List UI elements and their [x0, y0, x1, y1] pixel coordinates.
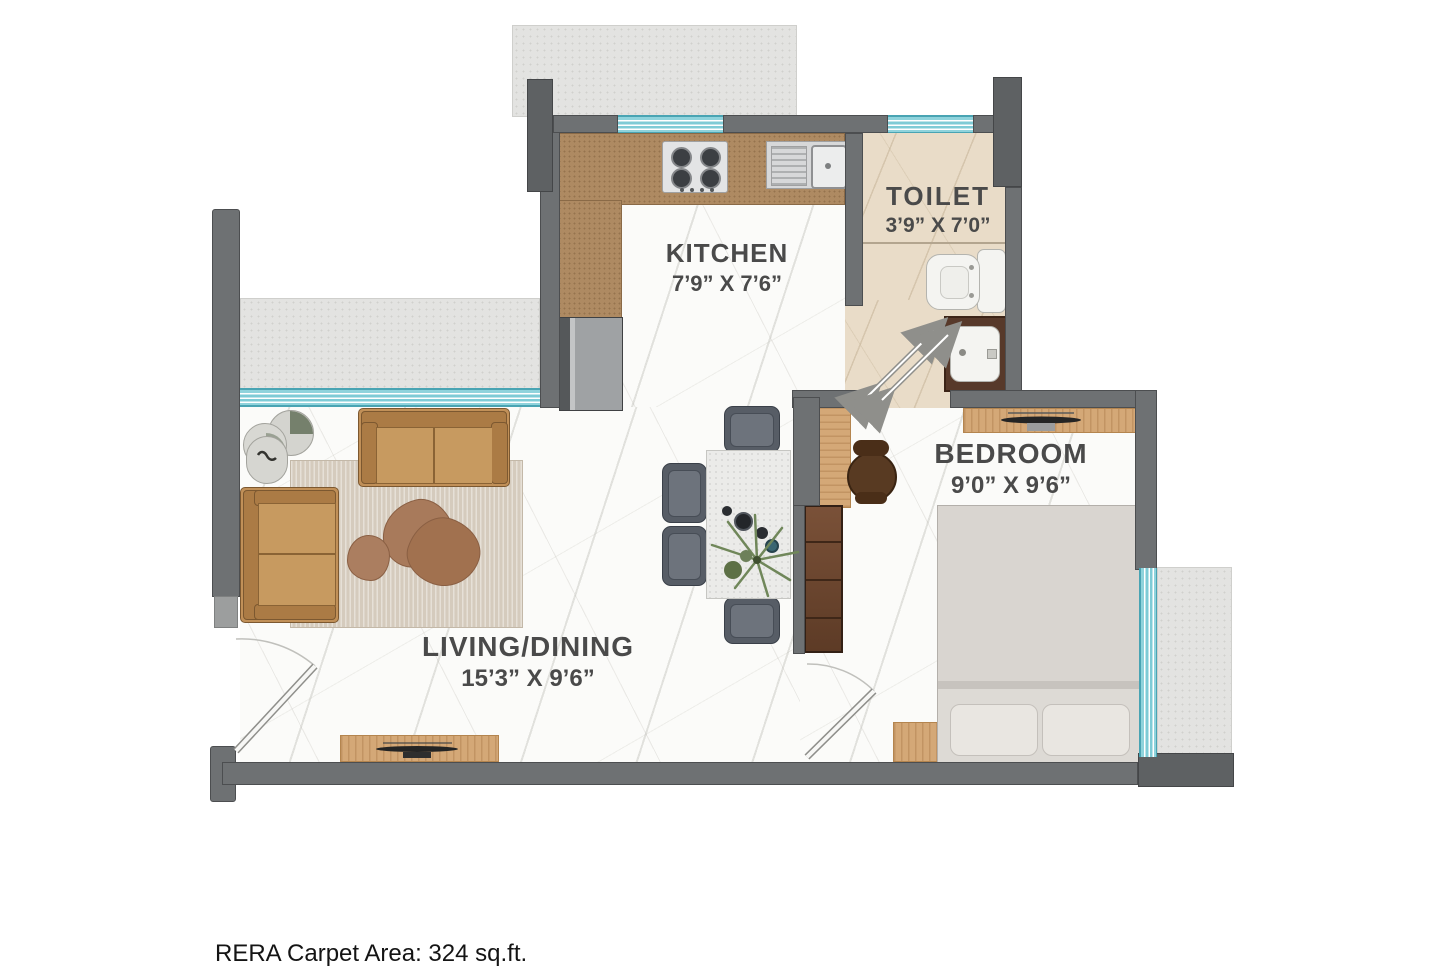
dining-chair-left-2 — [662, 526, 707, 586]
sink-unit — [766, 141, 846, 189]
dining-chair-top — [724, 406, 780, 453]
column-top-right — [993, 77, 1022, 187]
stove-burner-1 — [671, 147, 692, 168]
living-dining-name: LIVING/DINING — [422, 631, 634, 663]
bedroom-name: BEDROOM — [934, 438, 1087, 470]
sink-drainboard — [771, 146, 807, 186]
window-living — [240, 388, 540, 407]
sofa-top-arm-right — [491, 422, 508, 484]
coffee-table-pebble-3 — [347, 535, 390, 581]
office-chair — [845, 440, 897, 506]
bed — [937, 505, 1140, 762]
bedroom-label: BEDROOM 9’0” X 9’6” — [934, 438, 1087, 500]
wall-bottom — [222, 762, 1138, 785]
duct-top — [512, 25, 797, 117]
window-toilet — [888, 115, 973, 133]
wall-bedroom-top-seg-2 — [950, 390, 1157, 408]
toilet-wc-dot-2 — [969, 293, 974, 298]
deck-left — [240, 298, 540, 390]
bed-pillow-1 — [950, 704, 1038, 756]
sofa-left — [240, 487, 339, 623]
bed-fold-line — [938, 681, 1139, 689]
bedroom-size: 9’0” X 9’6” — [934, 472, 1087, 500]
toilet-divider-line — [863, 242, 1005, 244]
wall-top-seg-2 — [723, 115, 888, 133]
wall-top-seg-1 — [553, 115, 618, 133]
toilet-size: 3’9” X 7’0” — [885, 214, 990, 238]
bed-pillow-2 — [1042, 704, 1130, 756]
table-bowl-1 — [722, 506, 732, 516]
kitchen-size: 7’9” X 7’6” — [666, 271, 789, 297]
kitchen-counter-left — [556, 200, 622, 318]
tv-console — [340, 735, 499, 762]
stove-burner-3 — [671, 168, 692, 189]
table-bowl-4 — [765, 539, 779, 553]
wall-living-bedroom-partition-upper — [793, 397, 820, 506]
wall-bedroom-right-upper — [1135, 390, 1157, 570]
washbasin — [950, 326, 1000, 382]
fridge — [559, 317, 623, 411]
rera-carpet-area-note: RERA Carpet Area: 324 sq.ft. — [215, 940, 527, 968]
toilet-wc-dot-1 — [969, 265, 974, 270]
sofa-left-seat — [258, 503, 336, 606]
living-dining-label: LIVING/DINING 15’3” X 9’6” — [422, 631, 634, 693]
sofa-top-seat — [376, 427, 492, 484]
sink-bowl — [811, 145, 847, 189]
window-kitchen — [618, 115, 723, 133]
table-bowl-3 — [756, 527, 768, 539]
bedroom-nightstand — [893, 722, 943, 762]
dining-chair-bottom — [724, 597, 780, 644]
sofa-left-arm-bottom — [254, 604, 336, 620]
bedroom-shelf — [963, 408, 1137, 433]
wall-left — [212, 209, 240, 597]
toilet-wc-tank — [977, 249, 1006, 313]
living-dining-size: 15’3” X 9’6” — [422, 665, 634, 693]
wall-kitchen-toilet-partition — [845, 133, 863, 306]
side-table-oval — [246, 436, 288, 484]
window-bedroom — [1139, 568, 1157, 757]
column-kitchen-left — [527, 79, 553, 192]
floor-plan-canvas: KITCHEN 7’9” X 7’6” TOILET 3’9” X 7’0” B… — [0, 0, 1440, 970]
kitchen-label: KITCHEN 7’9” X 7’6” — [666, 238, 789, 297]
wall-bottom-right-block — [1138, 753, 1234, 787]
deck-right — [1157, 567, 1232, 757]
stove-burner-2 — [700, 147, 721, 168]
table-bowl-2 — [734, 512, 753, 531]
sofa-top — [358, 408, 510, 487]
wall-left-cap — [214, 596, 238, 628]
wall-living-bedroom-partition-lower — [793, 505, 805, 654]
wardrobe — [804, 505, 843, 653]
kitchen-name: KITCHEN — [666, 238, 789, 269]
toilet-name: TOILET — [885, 181, 990, 212]
stove-burner-4 — [700, 168, 721, 189]
stove — [662, 141, 728, 193]
toilet-wc-bowl — [926, 254, 980, 310]
dining-chair-left-1 — [662, 463, 707, 523]
toilet-label: TOILET 3’9” X 7’0” — [885, 181, 990, 238]
wall-toilet-right — [1005, 187, 1022, 404]
